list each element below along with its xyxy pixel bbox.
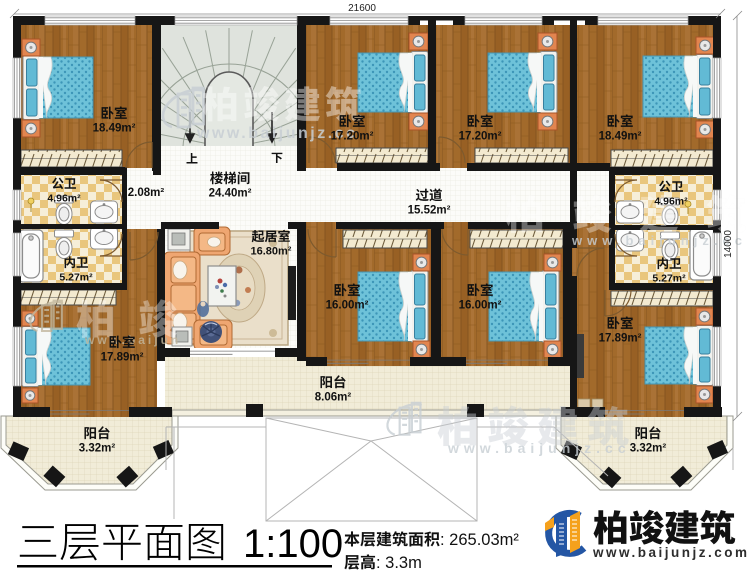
svg-text:www.baijunjz.com: www.baijunjz.com: [592, 545, 750, 560]
svg-text:17.20m²: 17.20m²: [459, 131, 502, 143]
svg-text:8.06m²: 8.06m²: [315, 392, 352, 404]
svg-text:4.96m²: 4.96m²: [47, 193, 81, 205]
svg-text:24.40m²: 24.40m²: [209, 188, 252, 200]
svg-text:5.27m²: 5.27m²: [59, 272, 93, 284]
svg-text:17.20m²: 17.20m²: [331, 131, 374, 143]
svg-text:21600: 21600: [348, 3, 376, 14]
svg-text:1:100: 1:100: [243, 522, 343, 566]
svg-text:4.96m²: 4.96m²: [654, 196, 688, 208]
svg-text:www.baijunjz.cc: www.baijunjz.cc: [447, 440, 631, 456]
svg-text:www.baijunjz.cc: www.baijunjz.cc: [571, 233, 747, 248]
svg-text:18.49m²: 18.49m²: [599, 131, 642, 143]
svg-text:: 3.3m: : 3.3m: [376, 554, 422, 572]
svg-text:5.27m²: 5.27m²: [652, 273, 686, 285]
svg-text:3.32m²: 3.32m²: [79, 443, 116, 455]
svg-text:14000: 14000: [723, 230, 734, 258]
svg-text:: 265.03m²: : 265.03m²: [440, 531, 519, 549]
svg-text:16.00m²: 16.00m²: [459, 300, 502, 312]
svg-text:18.49m²: 18.49m²: [93, 123, 136, 135]
svg-text:2.08m²: 2.08m²: [128, 187, 165, 199]
svg-text:3.32m²: 3.32m²: [630, 443, 667, 455]
svg-text:16.00m²: 16.00m²: [326, 300, 369, 312]
svg-text:16.80m²: 16.80m²: [251, 246, 292, 258]
svg-text:15.52m²: 15.52m²: [408, 205, 451, 217]
svg-text:17.89m²: 17.89m²: [599, 333, 642, 345]
svg-text:17.89m²: 17.89m²: [101, 352, 144, 364]
